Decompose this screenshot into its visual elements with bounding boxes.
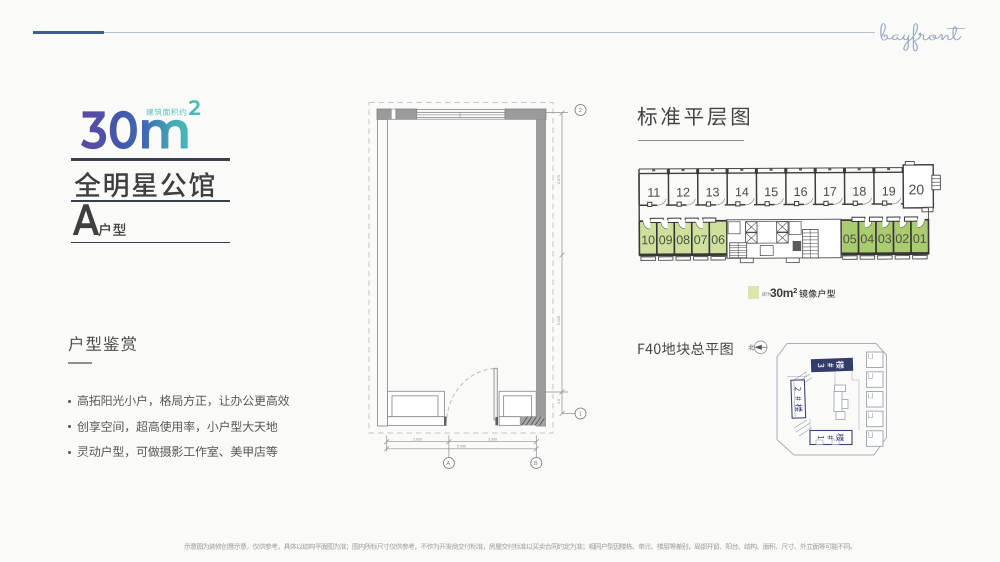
svg-text:12: 12 <box>676 186 690 200</box>
svg-text:02: 02 <box>895 232 909 246</box>
svg-text:04: 04 <box>860 232 874 246</box>
svg-text:20: 20 <box>909 181 925 197</box>
svg-text:06: 06 <box>711 233 725 247</box>
svg-text:10: 10 <box>641 233 655 247</box>
svg-text:07: 07 <box>694 233 708 247</box>
svg-text:15: 15 <box>764 185 778 199</box>
svg-text:3.300: 3.300 <box>488 437 497 441</box>
svg-text:14: 14 <box>735 185 749 199</box>
svg-text:B: B <box>534 461 538 467</box>
svg-text:13: 13 <box>706 185 720 199</box>
svg-text:2.675: 2.675 <box>557 175 561 184</box>
svg-text:1: 1 <box>579 412 582 418</box>
svg-text:5.225: 5.225 <box>557 316 561 325</box>
svg-text:2.600: 2.600 <box>413 437 422 441</box>
svg-text:11: 11 <box>647 186 660 200</box>
svg-text:01: 01 <box>913 232 927 246</box>
svg-text:08: 08 <box>676 233 690 247</box>
svg-text:09: 09 <box>659 233 673 247</box>
svg-text:03: 03 <box>878 232 892 246</box>
svg-text:A: A <box>447 461 451 467</box>
svg-text:05: 05 <box>843 232 857 246</box>
svg-text:1.0: 1.0 <box>557 399 561 404</box>
svg-text:5.900: 5.900 <box>457 444 466 448</box>
svg-text:2: 2 <box>579 108 582 114</box>
svg-text:19: 19 <box>882 184 896 198</box>
svg-text:18: 18 <box>852 185 866 199</box>
svg-text:17: 17 <box>823 185 837 199</box>
svg-text:16: 16 <box>794 185 808 199</box>
